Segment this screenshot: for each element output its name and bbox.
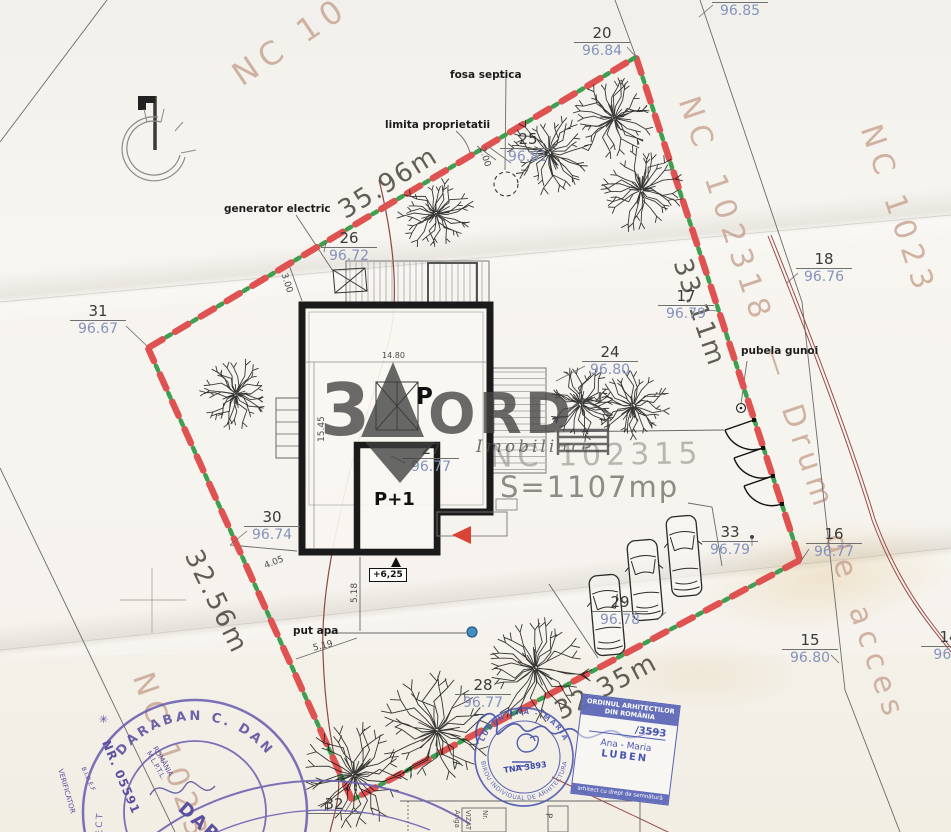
survey-point-elevation: 96.85: [712, 2, 768, 20]
stairs-left: [276, 398, 301, 458]
building-ground-label: P: [416, 384, 433, 410]
boundary-dash-green: [230, 530, 232, 535]
boundary-dash-green: [553, 104, 557, 107]
survey-point-number: 30: [244, 509, 300, 526]
boundary-dash-red: [795, 543, 800, 558]
titleblock-col-vizat: VIZAT: [464, 810, 472, 830]
boundary-dash-green: [156, 366, 158, 371]
north-flag: [138, 96, 155, 110]
boundary-dash-red: [562, 93, 575, 101]
boundary-dash-red: [646, 87, 651, 102]
boundary-dash-green: [592, 669, 596, 671]
building-footprint: [276, 261, 546, 567]
boundary-dash-red: [271, 620, 277, 634]
survey-point-elevation: 96.80: [782, 649, 838, 667]
dim-5-18: 5.18: [350, 583, 360, 603]
survey-point-number: 18: [796, 251, 852, 268]
boundary-dash-green: [316, 721, 318, 726]
boundary-dash-red: [748, 401, 753, 416]
survey-point-label: 32: [306, 796, 362, 814]
survey-point-label: 2496.80: [582, 344, 638, 379]
boundary-dash-red: [683, 201, 688, 216]
boundary-dash-red: [613, 63, 626, 71]
tree: [199, 359, 264, 430]
boundary-dash-red: [296, 675, 302, 689]
boundary-dash-red: [732, 589, 746, 596]
boundary-dash-red: [776, 486, 781, 501]
boundary-dash-green: [181, 420, 183, 425]
boundary-dash-green: [244, 288, 248, 291]
boundary-dash-green: [643, 77, 645, 82]
boundary-dash-green: [527, 119, 531, 122]
survey-point-number: 15: [782, 632, 838, 649]
survey-point-elevation: 96.76: [796, 268, 852, 286]
survey-point-label: 2996.78: [592, 594, 648, 629]
boundary-dash-green: [270, 273, 274, 276]
car: [662, 514, 707, 597]
boundary-dash-red: [148, 349, 154, 361]
gate-swings: [725, 420, 782, 506]
boundary-dash-green: [698, 249, 700, 254]
boundary-dash-green: [671, 163, 673, 168]
septic-tank-circle: [494, 172, 518, 196]
boundary-dash-green: [267, 612, 269, 617]
tree: [397, 178, 474, 247]
boundary-dash-red: [246, 566, 252, 580]
terrace-right: [490, 368, 546, 473]
survey-point-number: 32: [306, 796, 362, 814]
stamp-scribble: [150, 782, 215, 795]
boundary-dash-red: [785, 561, 799, 568]
boundary-dash-red: [785, 515, 790, 530]
boundary-dash-green: [708, 277, 710, 282]
titleblock-col-anga: Anga: [453, 810, 461, 828]
boundary-dash-red: [458, 155, 471, 163]
survey-point-elevation: 96.79: [702, 541, 758, 559]
boundary-dash-red: [653, 632, 667, 639]
boundary-dash-green: [724, 598, 728, 600]
survey-point-number: 29: [592, 594, 648, 611]
survey-point-label: 2896.77: [455, 677, 511, 712]
survey-point-label: 2796.77: [403, 441, 459, 476]
survey-point-elevation: 96.79: [658, 305, 714, 323]
generator-electric-label: generator electric: [224, 203, 331, 215]
boundary-dash-green: [565, 683, 569, 685]
terrace-top: [346, 261, 489, 303]
boundary-dash-red: [175, 324, 188, 332]
boundary-dash-green: [450, 165, 454, 168]
survey-point-number: 24: [582, 344, 638, 361]
boundary-dash-red: [185, 429, 191, 443]
boundary-dash-red: [655, 115, 660, 130]
limita-proprietatii-label: limita proprietatii: [385, 119, 490, 131]
stamp-role-arc: ARHITECT: [95, 811, 117, 832]
boundary-dash-red: [636, 58, 641, 73]
boundary-dash-green: [168, 393, 170, 398]
boundary-dash-red: [308, 702, 314, 716]
boundary-dash-green: [242, 557, 244, 562]
boundary-dash-red: [757, 429, 762, 444]
survey-point-elevation: 96.81: [500, 148, 556, 166]
boundary-dash-green: [750, 584, 754, 586]
boundary-dash-green: [424, 181, 428, 184]
boundary-dash-red: [739, 372, 744, 387]
survey-point-label: 3096.74: [244, 509, 300, 544]
boundary-dash-green: [304, 694, 306, 699]
survey-point-number: 14: [921, 629, 951, 646]
oar-rect-stamp: ORDINUL ARHITECTILOR DIN ROMÂNIA /3593 A…: [570, 693, 681, 805]
boundary-dash-red: [679, 617, 693, 624]
boundary-dash-green: [791, 534, 793, 539]
survey-point-label: 3396.79: [702, 524, 758, 559]
parked-cars: [585, 514, 707, 656]
boundary-dash-red: [304, 247, 317, 255]
boundary-dash-green: [205, 475, 207, 480]
survey-point-elevation: 96.67: [70, 320, 126, 338]
boundary-dash-green: [192, 319, 196, 322]
boundary-dash-green: [736, 363, 738, 368]
boundary-dash-red: [692, 230, 697, 245]
boundary-dash-green: [373, 212, 377, 215]
tree: [594, 370, 670, 440]
boundary-dash-green: [218, 502, 220, 507]
survey-point-label: 1496.7: [921, 629, 951, 664]
put-apa-label: put apa: [293, 625, 338, 637]
boundary-dash-green: [398, 196, 402, 199]
survey-point-label: 1696.77: [806, 526, 862, 561]
boundary-dash-green: [279, 639, 281, 644]
boundary-dash-red: [209, 484, 215, 498]
survey-point-elevation: 96.77: [455, 694, 511, 712]
boundary-dash-red: [664, 144, 669, 159]
boundary-dash-green: [618, 655, 622, 657]
boundary-dash-green: [380, 783, 384, 785]
entrance-arrow: [452, 526, 471, 544]
boundary-dash-green: [218, 304, 222, 307]
boundary-dash-green: [697, 613, 701, 615]
survey-point-number: 17: [658, 288, 714, 305]
boundary-dash-green: [671, 627, 675, 629]
boundary-dash-red: [278, 262, 291, 270]
survey-point-label: 2096.84: [574, 25, 630, 60]
boundary-dash-red: [536, 109, 549, 117]
survey-point-label: 1896.76: [796, 251, 852, 286]
survey-point-number: 31: [70, 303, 126, 320]
boundary-dash-green: [630, 58, 634, 61]
survey-point-elevation: 96.7: [921, 646, 951, 664]
boundary-dash-red: [259, 593, 265, 607]
boundary-dash-red: [720, 315, 725, 330]
survey-point-number: 26: [321, 230, 377, 247]
boundary-dash-red: [702, 258, 707, 273]
survey-point-number: 16: [806, 526, 862, 543]
water-well-circle: [467, 627, 477, 637]
survey-point-number: 33: [702, 524, 758, 541]
north-arrow: [122, 96, 196, 181]
boundary-dash-red: [197, 456, 203, 470]
titleblock-col-p: P: [543, 813, 553, 818]
boundary-dash-green: [661, 134, 663, 139]
survey-point-number: 28: [455, 677, 511, 694]
boundary-dash-red: [201, 309, 214, 317]
survey-point-label: 1796.79: [658, 288, 714, 323]
boundary-dash-green: [579, 89, 583, 92]
boundary-dash-green: [644, 641, 648, 643]
boundary-dash-red: [767, 458, 772, 473]
point-leader-line: [699, 5, 713, 17]
survey-point-elevation: 96.77: [403, 458, 459, 476]
fosa-septica-label: fosa septica: [450, 69, 522, 81]
boundary-dash-green: [295, 258, 299, 261]
boundary-dash-green: [717, 306, 719, 311]
boundary-dash-green: [539, 698, 543, 700]
dim-14-80: 14.80: [382, 351, 405, 360]
boundary-dash-green: [604, 73, 608, 76]
survey-point-number: 20: [574, 25, 630, 42]
building-upper-label: P+1: [374, 489, 415, 510]
survey-point-label: 3196.67: [70, 303, 126, 338]
svg-text:ARHITECT: ARHITECT: [95, 811, 117, 832]
boundary-dash-green: [166, 334, 170, 337]
boundary-dash-green: [193, 448, 195, 453]
boundary-dash-green: [255, 584, 257, 589]
boundary-dash-green: [292, 666, 294, 671]
boundary-dash-red: [706, 603, 720, 610]
boundary-dash-green: [689, 220, 691, 225]
boundary-dash-red: [149, 339, 162, 347]
boundary-dash-green: [745, 391, 747, 396]
survey-point-elevation: 96.74: [244, 526, 300, 544]
survey-point-label: 96.85: [712, 2, 768, 20]
boundary-dash-green: [726, 334, 728, 339]
stamp-star: ✳: [99, 713, 108, 726]
level-annotation: +6,25: [369, 568, 407, 582]
survey-point-elevation: 96.84: [574, 42, 630, 60]
survey-point-number: 25: [500, 131, 556, 148]
survey-point-number: 27: [403, 441, 459, 458]
boundary-dash-green: [433, 754, 437, 756]
titleblock-col-nr: Nr.: [481, 810, 489, 820]
survey-point-elevation: 96.78: [592, 611, 648, 629]
boundary-dash-green: [680, 192, 682, 197]
survey-point-elevation: 96.80: [582, 361, 638, 379]
level-marker-arrow: [391, 557, 401, 567]
pubela-gunoi-label: pubela gunoi: [741, 345, 818, 357]
boundary-dash-red: [227, 293, 240, 301]
site-plan-scan: NC 10 NC 102318 — Drum de acces NC 1023 …: [0, 0, 951, 832]
boundary-dash-red: [320, 730, 326, 744]
point-leader-line: [126, 326, 147, 346]
survey-point-label: 2596.81: [500, 131, 556, 166]
boundary-dash-red: [283, 648, 289, 662]
boundary-dash-red: [222, 511, 228, 525]
survey-point-label: 1596.80: [782, 632, 838, 667]
boundary-dash-green: [777, 570, 781, 572]
boundary-dash-red: [759, 575, 773, 582]
survey-point-label: 2696.72: [321, 230, 377, 265]
step-right: [437, 512, 507, 536]
boundary-dash-green: [652, 106, 654, 111]
survey-point-elevation: 96.72: [321, 247, 377, 265]
boundary-dash-red: [160, 374, 166, 388]
survey-point-elevation: 96.77: [806, 543, 862, 561]
dim-15-45: 15.45: [317, 416, 327, 442]
boundary-dash-red: [172, 402, 178, 416]
